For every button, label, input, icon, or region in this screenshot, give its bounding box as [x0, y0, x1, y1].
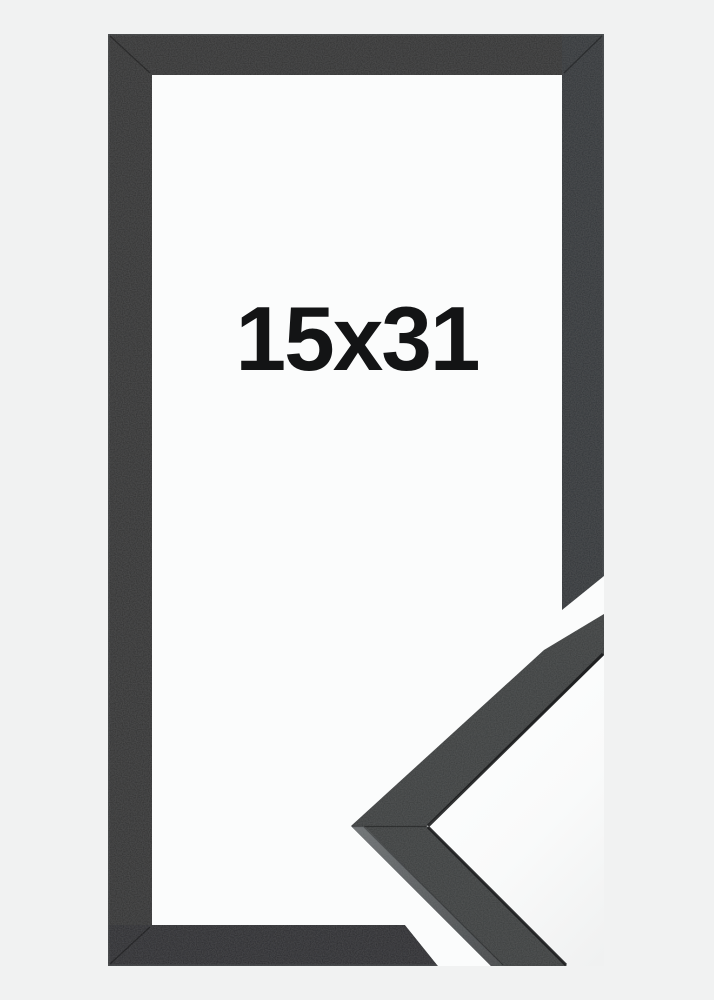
size-label: 15x31 — [0, 294, 714, 385]
frame-top-bar — [108, 34, 604, 75]
frame-photo-graphic — [0, 0, 714, 1000]
frame-left-bar — [108, 34, 152, 966]
frame-bottom-bar — [108, 925, 438, 966]
frame-product-photo: 15x31 — [0, 0, 714, 1000]
